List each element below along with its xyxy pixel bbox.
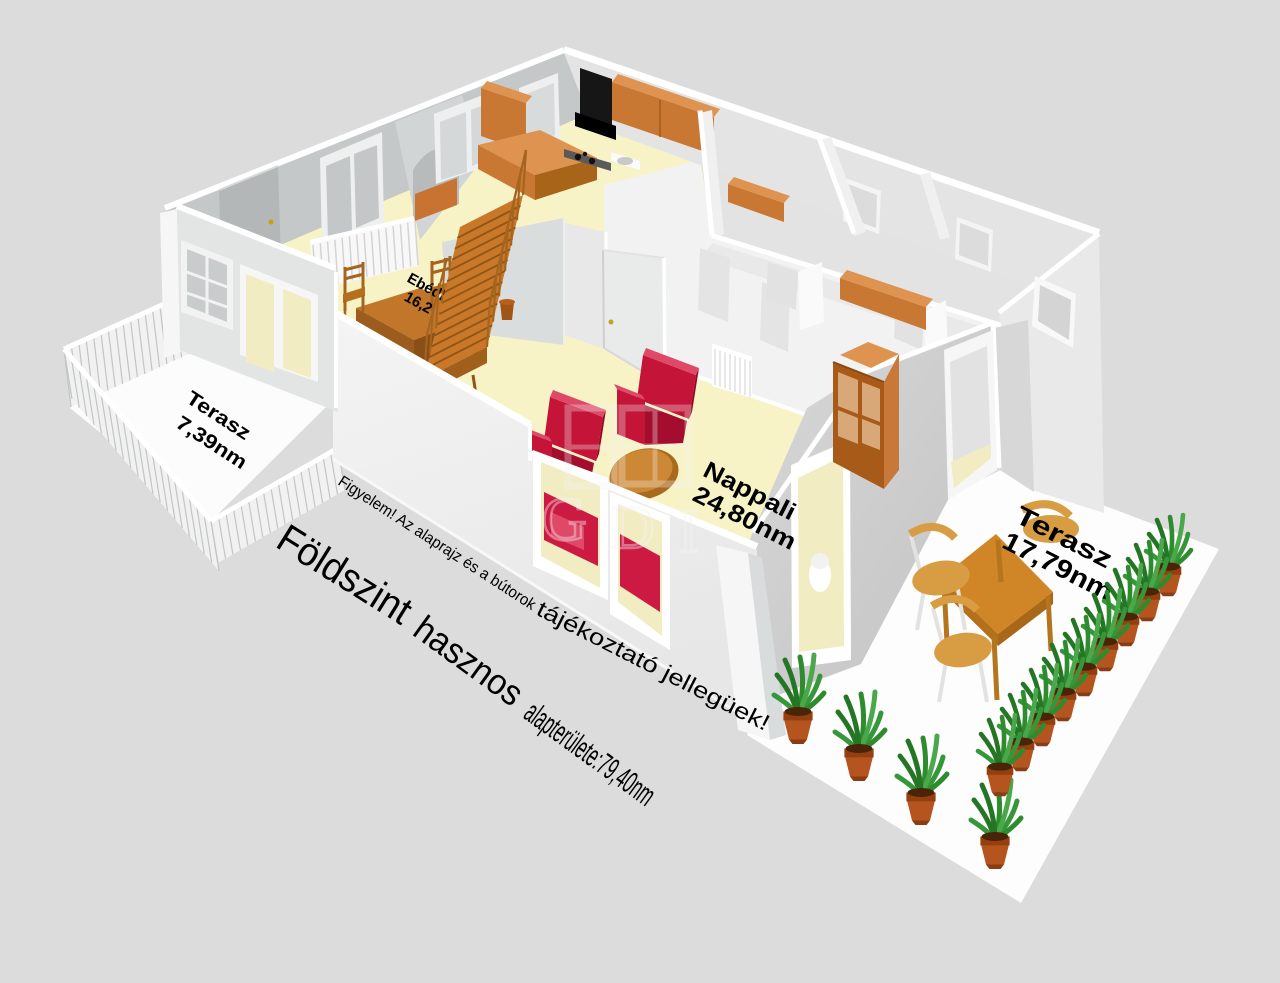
svg-text:D: D [610, 494, 655, 562]
svg-text:I: I [678, 498, 699, 566]
svg-text:G: G [542, 486, 587, 554]
